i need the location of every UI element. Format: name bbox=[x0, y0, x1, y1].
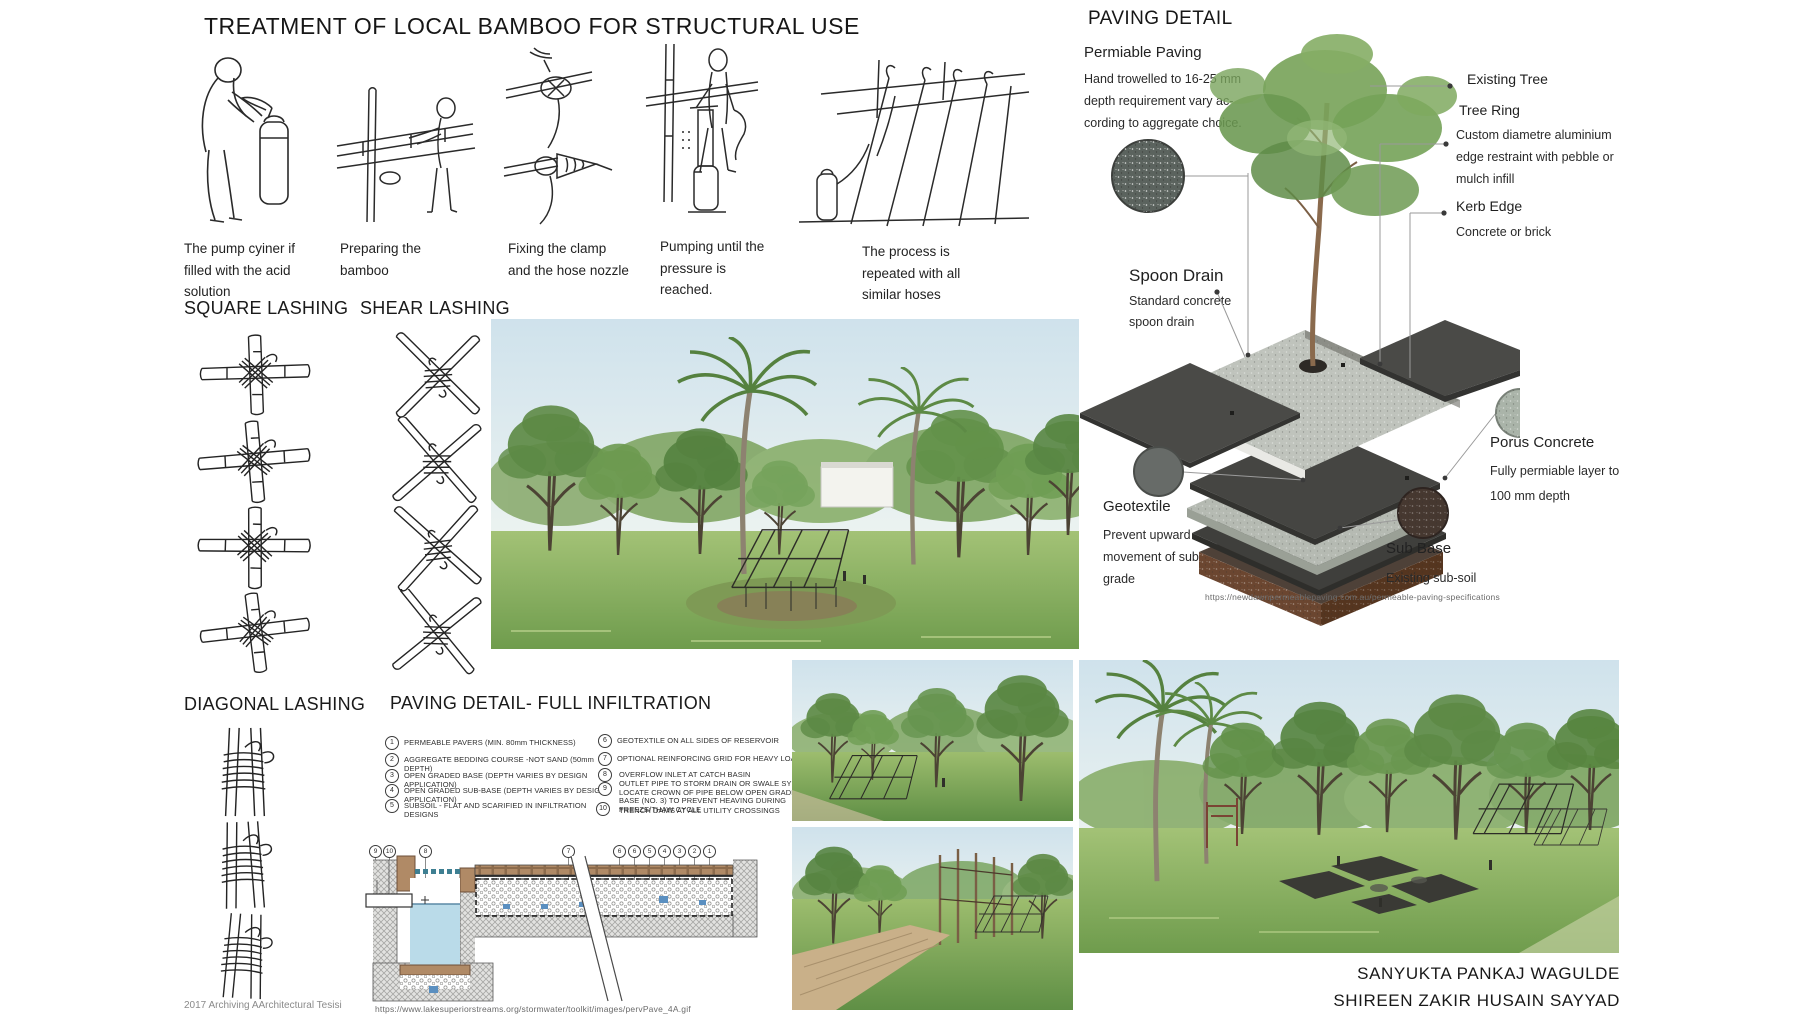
geotextile-line-3: grade bbox=[1103, 568, 1135, 590]
legend-text-6: GEOTEXTILE ON ALL SIDES OF RESERVOIR bbox=[617, 737, 807, 746]
render-park-overview-right bbox=[1079, 660, 1619, 953]
square-lashing-figure-1 bbox=[194, 333, 316, 417]
square-lashing-figure-3 bbox=[192, 505, 316, 591]
central-park-render bbox=[491, 319, 1079, 649]
porous-concrete-swatch bbox=[1496, 389, 1520, 437]
step-figure-preparing-bamboo bbox=[333, 72, 481, 230]
shear-lashing-figure-4 bbox=[382, 589, 490, 677]
legend-text-5: SUBSOIL - FLAT AND SCARIFIED IN INFILTRA… bbox=[404, 802, 614, 819]
bamboo-treatment-title: TREATMENT OF LOCAL BAMBOO FOR STRUCTURAL… bbox=[204, 13, 860, 40]
legend-num-2: 2 bbox=[385, 753, 399, 767]
credit-name-2: SHIREEN ZAKIR HUSAIN SAYYAD bbox=[1333, 991, 1620, 1011]
render-park-walkway-bottom bbox=[792, 827, 1073, 1010]
step-caption-4: Pumping until the pressure is reached. bbox=[660, 236, 772, 301]
legend-text-10: TRENCH DAMS AT ALL UTILITY CROSSINGS bbox=[619, 807, 819, 816]
step-caption-2: Preparing the bamboo bbox=[340, 238, 472, 281]
step-figure-pumping bbox=[638, 40, 762, 234]
legend-num-5: 5 bbox=[385, 799, 399, 813]
sub-base-label: Sub Base bbox=[1386, 540, 1451, 557]
square-lashing-figure-4 bbox=[196, 591, 314, 675]
legend-num-4: 4 bbox=[385, 784, 399, 798]
shear-lashing-figure-3 bbox=[384, 503, 490, 593]
sub-base-line-1: Existing sub-soil bbox=[1386, 567, 1476, 589]
geotextile-line-1: Prevent upward bbox=[1103, 524, 1191, 546]
infiltration-section-drawing bbox=[363, 838, 778, 1003]
legend-text-7: OPTIONAL REINFORCING GRID FOR HEAVY LOAD… bbox=[617, 755, 807, 764]
archive-note: 2017 Archiving AArchitectural Tesisi bbox=[184, 1000, 342, 1011]
square-lashing-figure-2 bbox=[192, 419, 316, 505]
legend-num-8: 8 bbox=[598, 768, 612, 782]
legend-num-6: 6 bbox=[598, 734, 612, 748]
paving-detail-source-url: https://newdawnpermeablepaving.com.au/pe… bbox=[1205, 592, 1500, 602]
legend-num-3: 3 bbox=[385, 769, 399, 783]
legend-num-1: 1 bbox=[385, 736, 399, 750]
step-caption-1: The pump cyiner if filled with the acid … bbox=[184, 238, 326, 303]
diagonal-lashing-figure-3 bbox=[198, 912, 288, 1000]
step-figure-hose-rig bbox=[793, 56, 1035, 230]
paving-detail-title: PAVING DETAIL bbox=[1088, 8, 1233, 30]
diagonal-lashing-figure-1 bbox=[200, 726, 288, 818]
porus-concrete-label: Porus Concrete bbox=[1490, 434, 1594, 451]
sub-base-swatch bbox=[1398, 488, 1448, 538]
geotextile-line-2: movement of sub bbox=[1103, 546, 1199, 568]
step-caption-3: Fixing the clamp and the hose nozzle bbox=[508, 238, 630, 281]
infiltration-source-url: https://www.lakesuperiorstreams.org/stor… bbox=[375, 1004, 691, 1014]
presentation-board: TREATMENT OF LOCAL BAMBOO FOR STRUCTURAL… bbox=[0, 0, 1800, 1022]
porus-concrete-line-1: Fully permiable layer to bbox=[1490, 460, 1619, 482]
aggregate-swatch bbox=[1112, 140, 1184, 212]
geotextile-label: Geotextile bbox=[1103, 498, 1171, 515]
legend-num-9: 9 bbox=[598, 782, 612, 796]
shear-lashing-figure-1 bbox=[384, 331, 490, 421]
legend-text-1: PERMEABLE PAVERS (MIN. 80mm THICKNESS) bbox=[404, 739, 594, 748]
step-figure-fixing-clamp bbox=[500, 46, 626, 234]
render-park-structure-top bbox=[792, 660, 1073, 821]
shear-lashing-title: SHEAR LASHING bbox=[360, 298, 510, 319]
porus-concrete-line-2: 100 mm depth bbox=[1490, 485, 1570, 507]
diagonal-lashing-figure-2 bbox=[198, 820, 288, 910]
diagonal-lashing-title: DIAGONAL LASHING bbox=[184, 694, 365, 715]
credit-name-1: SANYUKTA PANKAJ WAGULDE bbox=[1357, 964, 1620, 984]
geotextile-swatch bbox=[1134, 447, 1183, 496]
square-lashing-title: SQUARE LASHING bbox=[184, 298, 348, 319]
legend-num-10: 10 bbox=[596, 802, 610, 816]
legend-num-7: 7 bbox=[598, 752, 612, 766]
infiltration-title: PAVING DETAIL- FULL INFILTRATION bbox=[390, 693, 711, 714]
step-caption-5: The process is repeated with all similar… bbox=[862, 241, 1000, 306]
step-figure-pump-cylinder bbox=[172, 48, 334, 232]
shear-lashing-figure-2 bbox=[382, 417, 490, 507]
